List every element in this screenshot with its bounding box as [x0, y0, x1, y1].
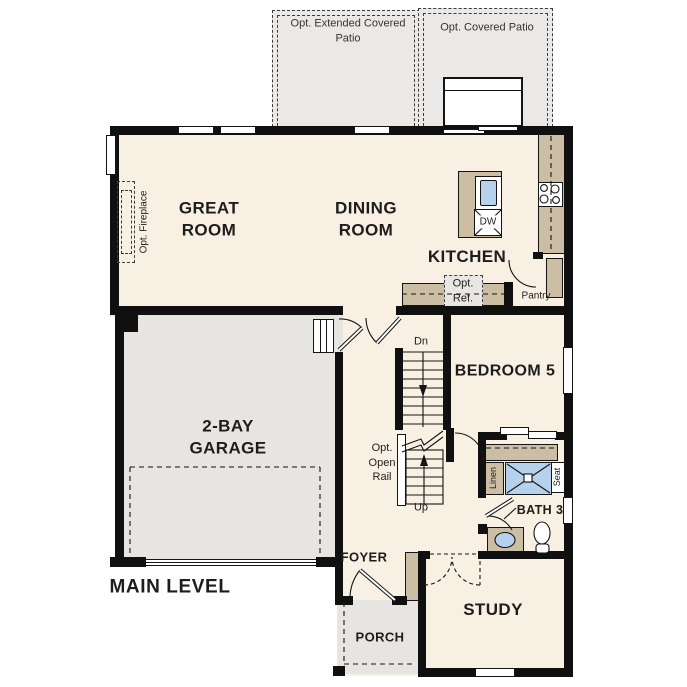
window	[354, 126, 390, 134]
kitchen-label: KITCHEN	[428, 246, 506, 268]
stair-open-rail	[397, 434, 406, 506]
study-label: STUDY	[463, 599, 523, 621]
shower	[505, 462, 552, 495]
wall	[333, 666, 345, 676]
kitchen-sink	[480, 180, 497, 206]
wall	[504, 282, 513, 307]
wall	[395, 348, 403, 430]
wall	[418, 551, 430, 559]
step-line	[326, 320, 327, 352]
garage-label: 2-BAY GARAGE	[189, 416, 266, 461]
window	[178, 126, 214, 134]
stove	[538, 182, 563, 207]
pantry-label: Pantry	[522, 289, 551, 302]
seat-label: Seat	[552, 468, 564, 487]
wall	[418, 552, 426, 677]
garage-door	[146, 559, 316, 566]
closet-shelf	[484, 444, 558, 461]
covered-patio-label: Opt. Covered Patio	[440, 21, 534, 36]
kitchen-counter-bottom-left	[402, 283, 446, 306]
linen-label: Linen	[488, 467, 500, 489]
wall	[392, 596, 407, 605]
closet-bypass-door	[528, 431, 557, 439]
wall	[115, 315, 124, 560]
garage-entry-steps	[313, 319, 334, 353]
floor-plan: Opt. Extended Covered Patio Opt. Covered…	[0, 0, 687, 687]
extended-patio-label: Opt. Extended Covered Patio	[291, 16, 406, 45]
great-room-label: GREAT ROOM	[179, 198, 239, 243]
wall	[446, 428, 454, 462]
dining-room-label: DINING ROOM	[335, 198, 397, 243]
wall	[478, 524, 487, 534]
wall	[335, 596, 353, 605]
porch-label: PORCH	[356, 628, 405, 645]
stairs-up-label: Up	[414, 501, 428, 516]
window	[220, 126, 256, 134]
opt-fireplace-label: Opt. Fireplace	[137, 191, 150, 254]
wall	[533, 252, 543, 259]
wall	[335, 352, 343, 605]
wall	[564, 126, 573, 677]
bath3-label: BATH 3	[517, 502, 564, 519]
wall	[478, 551, 573, 559]
wall	[110, 306, 343, 315]
window	[563, 497, 573, 524]
foyer-label: FOYER	[341, 548, 388, 565]
wall	[110, 557, 146, 567]
sliding-door-panel	[478, 126, 518, 131]
step-line	[320, 320, 321, 352]
opt-ref-label: Opt. Ref.	[453, 276, 474, 305]
wall	[478, 432, 486, 498]
window	[563, 347, 573, 394]
closet-bypass-door	[500, 427, 529, 435]
opt-open-rail-label: Opt. Open Rail	[369, 441, 396, 485]
optional-fireplace-inner	[121, 190, 132, 254]
wall	[443, 306, 451, 430]
garage-door-line	[146, 562, 316, 563]
window	[475, 668, 515, 677]
dishwasher-label: DW	[479, 215, 498, 228]
window	[106, 135, 116, 175]
patio-structure	[443, 77, 523, 127]
main-level-title: MAIN LEVEL	[109, 574, 230, 599]
patio-structure-counter	[445, 79, 521, 91]
bath-vanity	[487, 527, 524, 554]
bedroom5-label: BEDROOM 5	[455, 360, 556, 381]
wall	[396, 306, 573, 315]
stairs-dn-label: Dn	[414, 335, 428, 350]
